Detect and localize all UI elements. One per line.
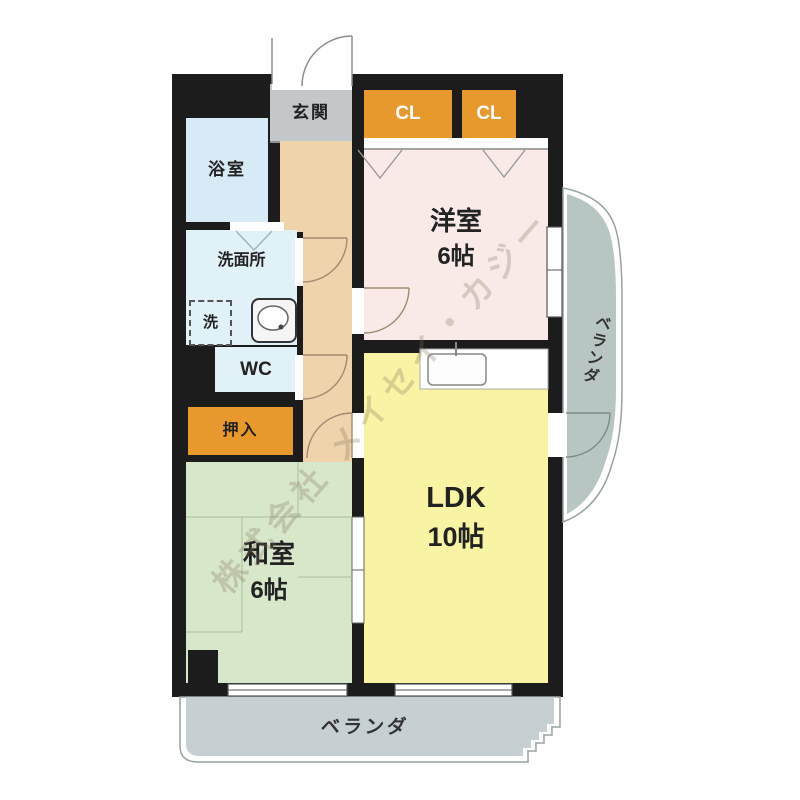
corridor-upper <box>280 141 352 232</box>
yoshitsu-size: 6帖 <box>437 236 474 271</box>
oshiire-label: 押入 <box>222 422 258 440</box>
closet-cl-1: CL <box>364 90 452 138</box>
corridor-lower <box>303 232 352 462</box>
veranda-bottom-label: ベランダ <box>294 712 437 739</box>
cl1-label: CL <box>395 103 420 125</box>
genkan-label: 玄関 <box>292 103 330 123</box>
room-ldk: LDK 10帖 <box>364 353 548 683</box>
bathroom-label: 浴室 <box>208 160 246 180</box>
washroom-label: 洗面所 <box>217 252 265 270</box>
veranda-right-label: ベランダ <box>560 310 614 424</box>
ldk-size: 10帖 <box>427 515 484 554</box>
closet-cl-2: CL <box>462 90 516 138</box>
floorplan-canvas: 玄関 CL CL 浴室 洗面所 洗 WC 押入 和室 6帖 洋室 6帖 LDK … <box>0 0 800 800</box>
washing-machine-box: 洗 <box>189 300 232 346</box>
ldk-label: LDK <box>426 482 486 515</box>
cl2-label: CL <box>476 103 501 125</box>
room-wc: WC <box>215 347 297 392</box>
washitsu-label: 和室 <box>243 540 295 570</box>
wall-step-block <box>188 650 218 683</box>
yoshitsu-label: 洋室 <box>430 207 482 237</box>
cl-divider-wall <box>452 90 462 124</box>
room-oshiire: 押入 <box>188 407 293 455</box>
room-genkan: 玄関 <box>270 84 352 143</box>
washitsu-size: 6帖 <box>250 570 287 605</box>
room-bathroom: 浴室 <box>186 118 268 222</box>
wc-label: WC <box>240 359 272 381</box>
washing-machine-label: 洗 <box>203 314 218 331</box>
room-yoshitsu: 洋室 6帖 <box>364 138 548 340</box>
